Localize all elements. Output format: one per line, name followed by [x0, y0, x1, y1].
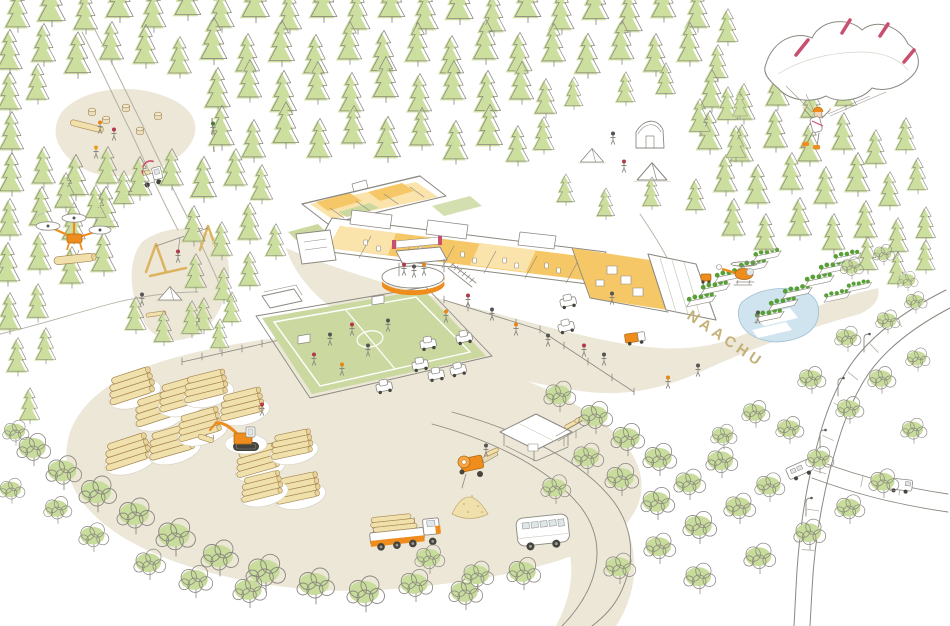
conifer-tree: [240, 119, 266, 162]
deciduous-tree: [683, 511, 717, 543]
deciduous-tree: [906, 348, 930, 371]
conifer-tree: [812, 166, 837, 208]
conifer-tree: [26, 232, 51, 274]
conifer-tree: [442, 120, 468, 164]
conifer-tree: [30, 23, 56, 66]
deciduous-tree: [876, 310, 900, 333]
tree-stump: [155, 112, 162, 120]
conifer-tree: [641, 177, 661, 210]
conifer-tree: [877, 172, 900, 211]
tree-stump: [89, 108, 96, 116]
deciduous-tree: [0, 478, 25, 503]
deciduous-tree: [17, 433, 51, 465]
road-marking: [848, 372, 857, 380]
tree-stump: [103, 116, 110, 124]
conifer-tree: [863, 130, 886, 169]
conifer-tree: [533, 79, 557, 119]
forklift: [701, 274, 711, 284]
conifer-tree: [34, 328, 56, 364]
conifer-tree: [203, 67, 230, 112]
conifer-tree: [0, 71, 22, 114]
courtyard-green: [432, 196, 482, 216]
conifer-tree: [716, 9, 738, 46]
conifer-tree: [906, 158, 928, 194]
conifer-tree: [237, 252, 260, 291]
road-marking: [823, 436, 834, 441]
conifer-tree: [724, 126, 746, 162]
deciduous-tree: [868, 367, 896, 394]
person: [611, 132, 615, 145]
conifer-tree: [4, 0, 30, 32]
conifer-tree: [264, 224, 286, 260]
conifer-tree: [650, 0, 676, 22]
parked-car: [559, 293, 577, 310]
conifer-tree: [406, 73, 432, 116]
banner-flag: [392, 240, 396, 249]
conifer-tree: [0, 242, 20, 286]
conifer-tree: [30, 146, 55, 188]
conifer-tree: [249, 165, 273, 205]
deciduous-tree: [44, 497, 72, 524]
conifer-tree: [852, 200, 877, 242]
tree-stump: [123, 104, 130, 112]
conifer-tree: [563, 77, 583, 110]
conifer-tree: [209, 319, 229, 352]
road-marking: [861, 475, 863, 487]
conifer-tree: [505, 126, 529, 167]
conifer-tree: [915, 240, 935, 274]
road-marking: [870, 344, 878, 353]
carried-log: [54, 253, 97, 265]
field-shed: [262, 289, 302, 308]
deciduous-tree: [744, 543, 776, 574]
west-tower: [296, 230, 336, 264]
garden-bed: [803, 270, 835, 287]
conifer-tree: [25, 284, 48, 323]
conifer-tree: [731, 92, 748, 120]
person: [696, 364, 700, 377]
deciduous-tree: [711, 424, 737, 449]
person: [622, 160, 626, 173]
conifer-tree: [0, 111, 24, 154]
deciduous-tree: [755, 473, 785, 502]
deciduous-tree: [742, 401, 770, 428]
goal: [298, 334, 310, 344]
conifer-tree: [556, 174, 575, 206]
conifer-tree: [573, 33, 600, 78]
conifer-tree: [189, 156, 217, 202]
conifer-tree: [513, 0, 541, 23]
east-road-edge: [810, 308, 950, 626]
conifer-tree: [36, 0, 66, 27]
conifer-tree: [744, 164, 770, 208]
conifer-tree: [753, 214, 777, 255]
conifer-tree: [0, 292, 21, 334]
conifer-tree: [581, 0, 609, 25]
street-lamps-layer: [806, 333, 871, 516]
tent: [578, 149, 607, 163]
conifer-tree: [914, 207, 935, 242]
conifer-tree: [0, 152, 24, 196]
conifer-tree: [240, 0, 270, 23]
small-truck: [624, 332, 645, 346]
deciduous-tree: [79, 523, 109, 552]
conifer-tree: [596, 188, 615, 220]
conifer-tree: [532, 117, 554, 154]
conifer-tree: [72, 0, 98, 34]
conifer-tree: [0, 29, 22, 74]
conifer-tree: [830, 112, 855, 154]
conifer-tree: [762, 109, 788, 152]
conifer-tree: [684, 179, 705, 214]
road-marking: [807, 509, 819, 511]
deciduous-tree: [641, 487, 675, 519]
conifer-tree: [63, 32, 91, 79]
street-lamp: [806, 497, 813, 516]
deciduous-tree: [643, 443, 677, 475]
conifer-tree: [0, 198, 21, 240]
deciduous-tree: [898, 271, 919, 291]
conifer-tree: [377, 0, 405, 23]
deciduous-tree: [644, 533, 676, 564]
tent: [634, 163, 671, 181]
conifer-tree: [173, 0, 201, 21]
conifer-tree: [306, 118, 332, 162]
deciduous-tree: [674, 469, 706, 500]
conifer-tree: [786, 197, 812, 240]
goal: [372, 295, 384, 305]
road-marking: [802, 550, 814, 551]
camp-hut: [636, 121, 664, 148]
conifer-tree: [408, 107, 434, 150]
conifer-tree: [821, 214, 845, 255]
deciduous-tree: [901, 418, 927, 443]
conifer-tree: [894, 118, 916, 154]
conifer-tree: [373, 116, 401, 162]
deciduous-tree: [724, 493, 756, 524]
deciduous-tree: [776, 417, 804, 444]
deciduous-tree: [835, 495, 865, 524]
garden-bed: [845, 278, 873, 292]
conifer-tree: [5, 338, 28, 377]
conifer-tree: [615, 72, 635, 106]
banner-flag: [438, 236, 442, 245]
tree-stump: [137, 127, 144, 135]
drone-body: [67, 234, 82, 243]
deciduous-tree: [835, 326, 861, 351]
street-lamp: [820, 429, 827, 448]
conifer-tree: [18, 388, 40, 424]
conifer-tree: [236, 202, 261, 244]
deciduous-tree: [836, 397, 864, 424]
conifer-tree: [166, 36, 191, 78]
deciduous-tree: [798, 367, 826, 394]
conifer-tree: [844, 152, 870, 196]
conifer-tree: [25, 64, 49, 105]
deciduous-tree: [684, 563, 716, 594]
conifer-tree: [104, 0, 133, 23]
pilot-boot: [813, 145, 820, 150]
illustrated-forest-campus-map: NAACHU: [0, 0, 950, 626]
conifer-tree: [720, 198, 745, 240]
person: [666, 376, 670, 389]
conifer-tree: [309, 0, 337, 23]
conifer-tree: [444, 0, 473, 25]
deciduous-tree: [706, 447, 738, 478]
